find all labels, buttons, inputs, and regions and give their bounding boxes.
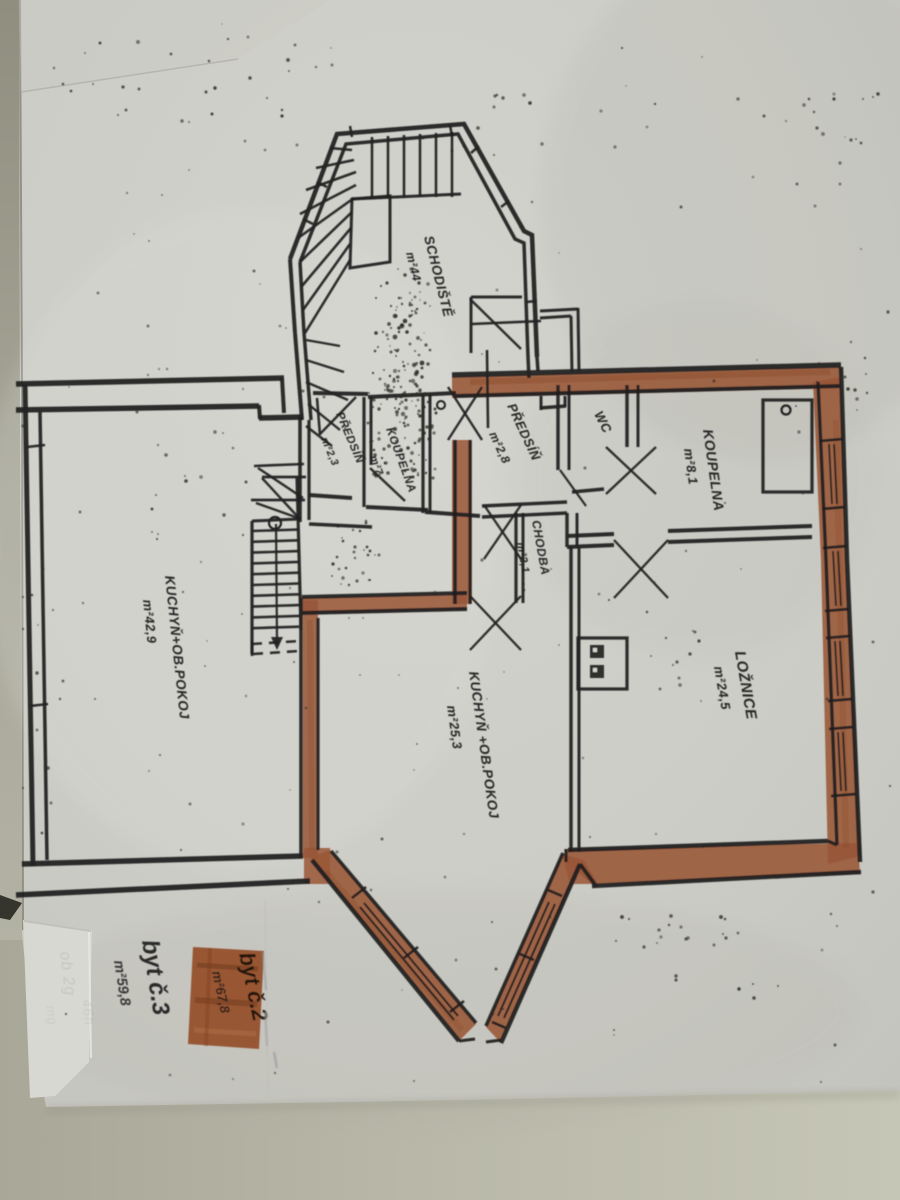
svg-text:46h: 46h xyxy=(79,998,98,1026)
svg-text:mg: mg xyxy=(43,1005,60,1027)
